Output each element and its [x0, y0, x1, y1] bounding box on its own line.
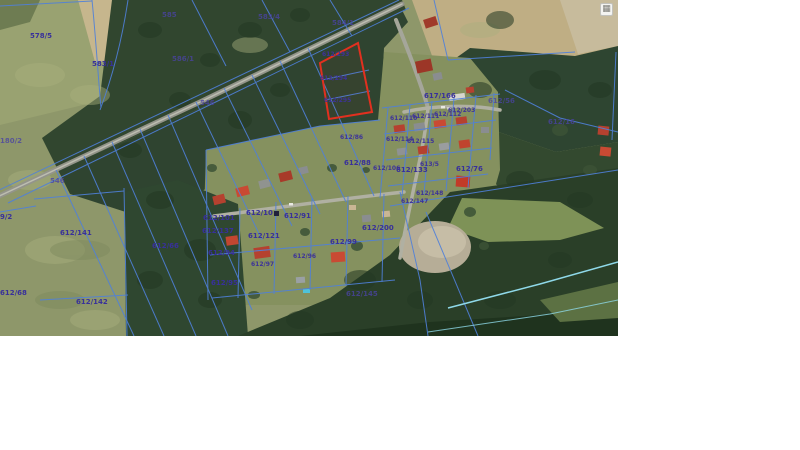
grid-icon: ▦ [602, 5, 611, 14]
map-viewport[interactable]: 578/5583/1585586/1583/4584/1546180/25469… [0, 0, 618, 336]
aerial-map-canvas [0, 0, 618, 336]
pool [303, 289, 310, 293]
map-grid-widget-button[interactable]: ▦ [600, 3, 613, 16]
